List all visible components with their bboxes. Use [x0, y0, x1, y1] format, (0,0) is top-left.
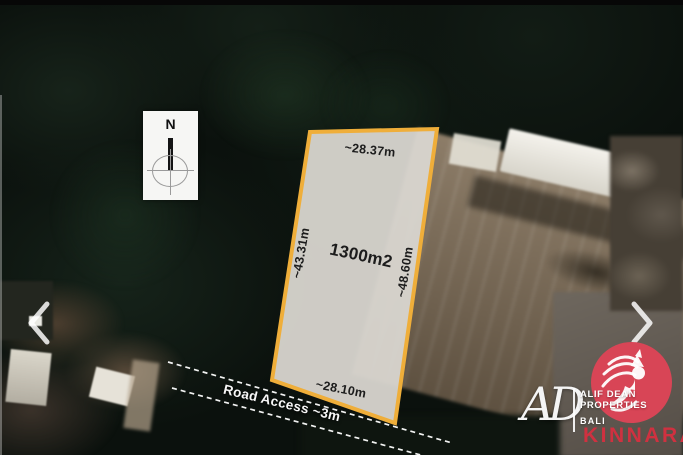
- agency-name: ALIF DEAN: [580, 389, 647, 400]
- compass-north-icon: N: [143, 111, 198, 200]
- brand-name: KINNARA: [583, 424, 683, 448]
- compass-north-label: N: [143, 116, 198, 132]
- agency-name-block: ALIF DEAN PROPERTIES BALI: [580, 389, 647, 427]
- compass-crosshair-vertical: [170, 149, 171, 195]
- carousel-prev-button[interactable]: [26, 300, 52, 346]
- watermark-divider: [573, 388, 575, 432]
- chevron-left-icon: [26, 300, 52, 346]
- carousel-next-button[interactable]: [629, 300, 655, 346]
- agency-type: PROPERTIES: [580, 400, 647, 411]
- chevron-right-icon: [629, 300, 655, 346]
- listing-photo-viewer: ~28.37m ~43.31m ~48.60m 1300m2 ~28.10m R…: [0, 0, 683, 455]
- agency-monogram: AD: [521, 377, 579, 431]
